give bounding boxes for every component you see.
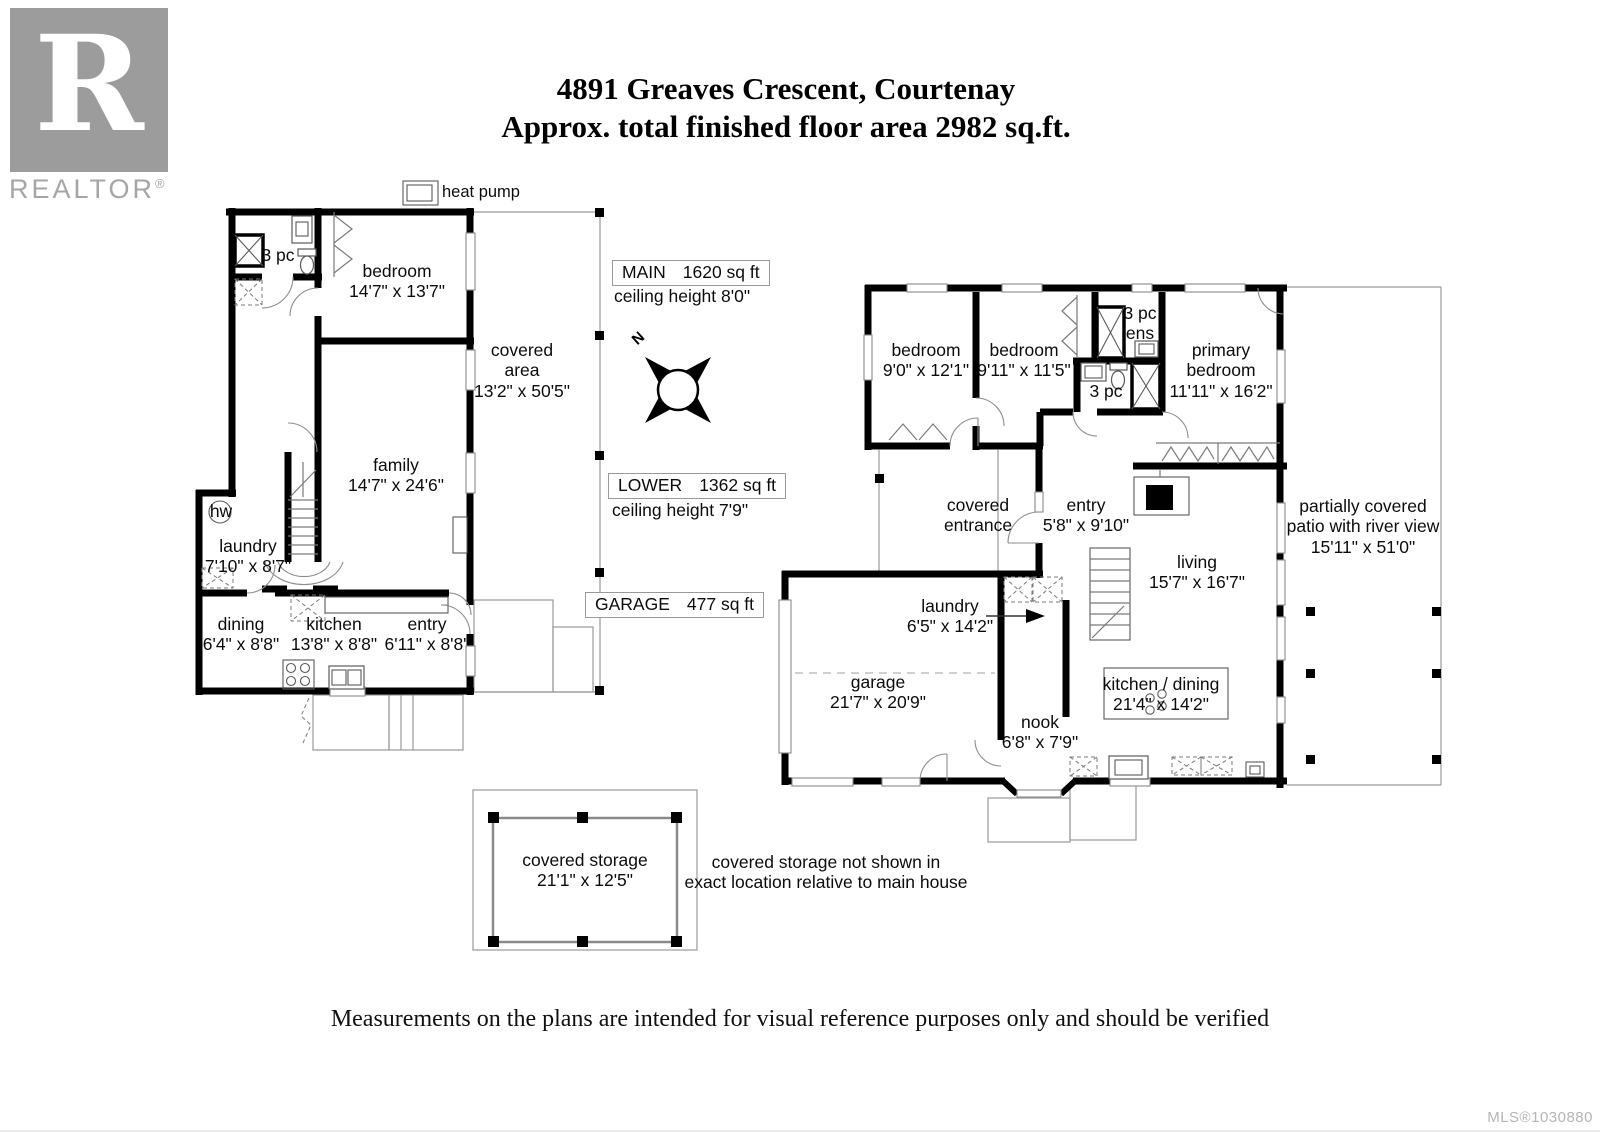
window xyxy=(907,284,947,292)
window xyxy=(1185,284,1245,292)
stove-icon xyxy=(283,660,314,689)
registered-mark: ® xyxy=(155,176,165,191)
window xyxy=(1002,284,1042,292)
main-area-tag: MAIN1620 sq ft xyxy=(612,260,770,286)
room-label-entry-main: entry 5'8" x 9'10" xyxy=(1043,495,1129,536)
realtor-wordmark: REALTOR® xyxy=(9,174,165,205)
post xyxy=(595,568,604,577)
post xyxy=(1306,669,1315,678)
room-label-covered-entrance: covered entrance xyxy=(944,495,1012,536)
post xyxy=(1306,607,1315,616)
disclaimer-text: Measurements on the plans are intended f… xyxy=(0,1006,1600,1033)
room-label-laundry-main: laundry 6'5" x 14'2" xyxy=(907,596,993,637)
door-arc xyxy=(1162,412,1188,438)
laundry-arrow-icon xyxy=(986,609,1045,623)
room-label-covered-area: covered area 13'2" x 50'5" xyxy=(474,340,570,401)
label-storage-note: covered storage not shown in exact locat… xyxy=(684,852,967,893)
post xyxy=(1432,669,1441,678)
window xyxy=(1277,617,1285,660)
toilet-icon xyxy=(298,249,316,274)
shower-icon xyxy=(1132,363,1160,409)
room-label-ensuite: 3 pc ens xyxy=(1123,303,1156,344)
door-arc xyxy=(262,277,293,308)
post xyxy=(595,451,604,460)
post xyxy=(1306,755,1315,764)
post xyxy=(595,331,604,340)
closet-bifold-icon xyxy=(889,424,947,440)
covered-area-outline xyxy=(474,212,600,692)
door-arc xyxy=(975,740,1001,766)
room-label-bedroom-1: bedroom 9'0" x 12'1" xyxy=(883,340,969,381)
lower-area-tag: LOWER1362 sq ft xyxy=(608,473,786,499)
door-arc xyxy=(920,754,947,781)
door-arc xyxy=(1073,412,1097,436)
post xyxy=(595,686,604,695)
door-arc xyxy=(976,398,1004,426)
room-label-entry-lower: entry 6'11" x 8'8" xyxy=(385,614,470,655)
room-label-patio: partially covered patio with river view … xyxy=(1287,496,1440,557)
cabinet xyxy=(453,517,467,553)
window xyxy=(1132,284,1152,292)
window xyxy=(1277,503,1285,553)
porch-steps xyxy=(988,798,1070,842)
room-label-dining: dining 6'4" x 8'8" xyxy=(203,614,280,655)
kitchen-counter xyxy=(325,597,448,613)
room-label-bedroom-2: bedroom 9'11" x 11'5" xyxy=(977,340,1070,381)
window xyxy=(882,778,920,786)
bay-window xyxy=(1017,790,1061,797)
washer-dryer-icon xyxy=(1004,577,1062,602)
deck-steps xyxy=(301,695,463,750)
door-arc xyxy=(1008,512,1039,543)
garage-area-tag: GARAGE477 sq ft xyxy=(585,592,764,618)
mls-number: MLS®1030880 xyxy=(1487,1109,1593,1126)
kitchen-counters xyxy=(1070,756,1264,779)
room-label-hw: hw xyxy=(210,501,232,521)
heat-pump-label: heat pump xyxy=(442,183,520,202)
shower-icon xyxy=(235,235,263,266)
kitchen-sink-icon xyxy=(329,666,364,689)
window xyxy=(864,335,872,380)
post xyxy=(1432,755,1441,764)
door-arc xyxy=(288,423,317,452)
lower-ceiling-label: ceiling height 7'9" xyxy=(612,500,748,521)
window xyxy=(466,233,475,290)
room-label-bath-lower: 3 pc xyxy=(261,245,294,265)
room-label-bedroom-lower: bedroom 14'7" x 13'7" xyxy=(349,261,445,302)
primary-closet xyxy=(1156,443,1280,464)
room-label-living: living 15'7" x 16'7" xyxy=(1149,552,1245,593)
room-label-laundry-lower: laundry 7'10" x 8'7" xyxy=(205,536,291,577)
window xyxy=(792,778,853,786)
crawl-hatch-icon xyxy=(235,279,262,305)
room-label-nook: nook 6'8" x 7'9" xyxy=(1002,712,1079,753)
room-label-bathroom: 3 pc xyxy=(1089,381,1122,401)
heat-pump-icon xyxy=(403,181,438,205)
room-label-kitchen-dining: kitchen / dining 21'4" x 14'2" xyxy=(1103,674,1220,715)
shower-icon xyxy=(1097,307,1124,358)
stairs-main xyxy=(1090,548,1130,640)
window xyxy=(1035,492,1043,512)
title-area: Approx. total finished floor area 2982 s… xyxy=(0,108,1572,146)
sink-icon xyxy=(292,216,312,243)
post xyxy=(875,474,884,483)
main-ceiling-label: ceiling height 8'0" xyxy=(614,286,750,307)
compass-icon xyxy=(645,357,711,423)
window xyxy=(1277,560,1285,605)
window xyxy=(466,453,475,493)
room-label-primary-bedroom: primary bedroom 11'11" x 16'2" xyxy=(1169,340,1272,401)
room-label-garage: garage 21'7" x 20'9" xyxy=(830,672,926,713)
wood-stove-icon xyxy=(1134,470,1189,515)
window xyxy=(1277,697,1285,723)
exterior-steps xyxy=(474,600,553,692)
window xyxy=(1277,350,1285,403)
post xyxy=(1432,607,1441,616)
garage-door xyxy=(779,600,791,753)
door-arc xyxy=(290,288,318,316)
sink-icon xyxy=(1081,363,1106,381)
room-label-family: family 14'7" x 24'6" xyxy=(348,455,444,496)
floor-plan-sheet: R REALTOR® 4891 Greaves Crescent, Courte… xyxy=(0,0,1600,1132)
page-title: 4891 Greaves Crescent, Courtenay Approx.… xyxy=(0,70,1572,146)
label-covered-storage: covered storage 21'1" x 12'5" xyxy=(522,850,648,891)
title-address: 4891 Greaves Crescent, Courtenay xyxy=(0,70,1572,108)
post xyxy=(595,208,604,217)
room-label-kitchen-lower: kitchen 13'8" x 8'8" xyxy=(291,614,377,655)
